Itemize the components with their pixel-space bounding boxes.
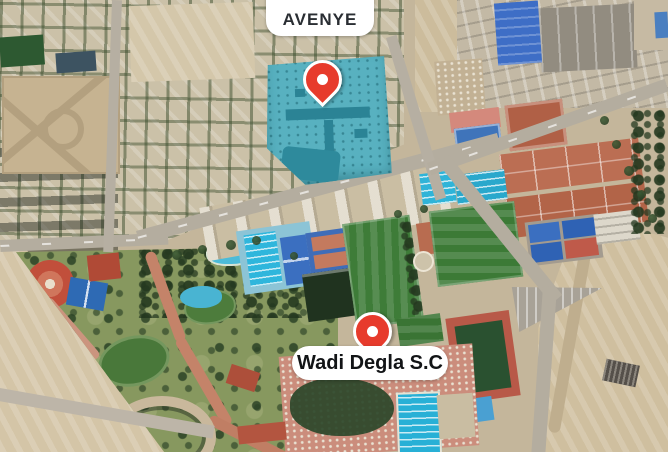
basketball-court (530, 241, 563, 263)
tree-icon (624, 166, 634, 176)
tree-icon (172, 250, 182, 260)
blue-roof-small (654, 12, 668, 39)
warehouse-roof (538, 4, 637, 73)
lagoon-pool (180, 286, 222, 308)
tree-icon (290, 252, 298, 260)
tree-icon (420, 205, 428, 213)
garden-circle (42, 108, 84, 150)
tree-icon (637, 190, 646, 199)
tree-grove-dark (290, 378, 394, 436)
garden-square (2, 76, 120, 174)
compound-courtyard (286, 107, 370, 121)
culvert-structure (602, 359, 640, 388)
marker-label: Wadi Degla S.C (297, 347, 443, 379)
marker-label-line2: AVENYE (283, 6, 358, 33)
basketball-court (528, 222, 561, 244)
marker-label-bubble[interactable]: RAYHANAH AVENYE (266, 0, 374, 36)
court-cluster (525, 214, 604, 267)
tree-icon (252, 236, 261, 245)
tennis-courts-blue (66, 277, 108, 311)
tree-icon (198, 245, 207, 254)
helipad-circle (413, 251, 434, 272)
marker-label-bubble[interactable]: Wadi Degla S.C (292, 346, 448, 380)
tree-icon (648, 214, 657, 223)
compound-courtyard (354, 129, 367, 138)
location-pin-icon[interactable] (352, 290, 392, 346)
marker-wadi-degla-sc[interactable]: Wadi Degla S.C (292, 290, 448, 382)
basketball-court (562, 217, 597, 239)
construction-site (129, 2, 256, 82)
pool-deck-south (437, 393, 476, 439)
cemetery-plot (434, 58, 486, 115)
red-court (564, 237, 599, 259)
tree-icon (612, 140, 621, 149)
tree-icon (226, 240, 236, 250)
pin-hole (365, 324, 381, 340)
red-roof-building (87, 252, 122, 281)
satellite-map[interactable]: RAYHANAH AVENYE Wadi Degla S.C (0, 0, 668, 452)
wadi-channel (548, 244, 593, 433)
red-roof-building (226, 364, 261, 392)
location-pin-icon[interactable] (302, 38, 342, 94)
pin-hole (315, 72, 331, 88)
tree-icon (394, 210, 402, 218)
blue-factory-roof (494, 1, 542, 66)
green-pitch (0, 35, 45, 68)
marker-rayhanah-avenye[interactable]: RAYHANAH AVENYE (264, 0, 376, 98)
solar-panels (55, 51, 96, 74)
swimming-pool-south (396, 391, 442, 452)
tree-icon (600, 116, 609, 125)
